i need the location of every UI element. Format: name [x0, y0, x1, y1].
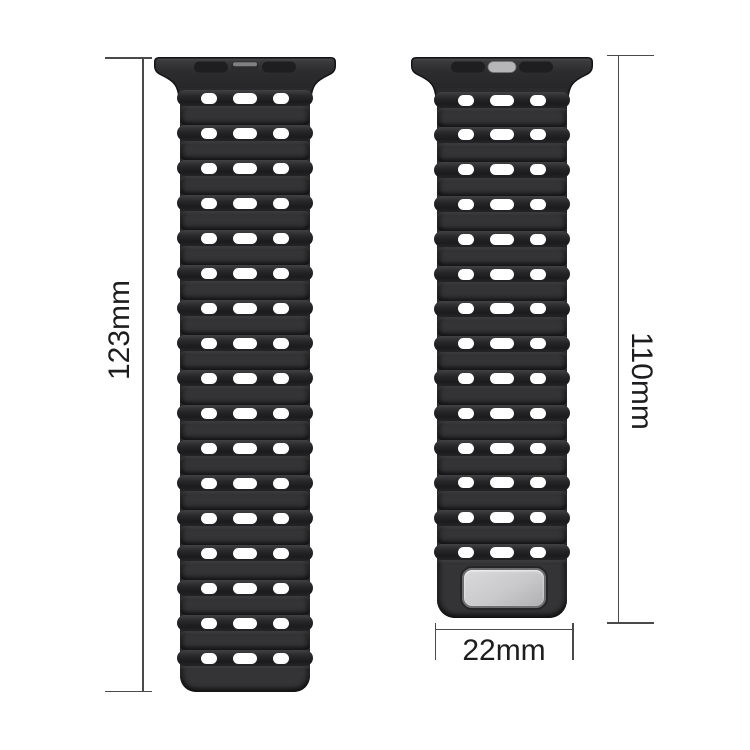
strap-ridge: [437, 212, 567, 231]
strap-hole: [490, 303, 514, 314]
strap-hole-row: [177, 615, 313, 631]
strap-ridge: [180, 211, 310, 230]
dim-tick-right-top: [607, 55, 654, 57]
strap-ridge: [437, 386, 567, 405]
strap-hole: [458, 373, 474, 384]
strap-hole: [458, 512, 474, 523]
strap-ridge: [437, 178, 567, 197]
strap-ridge: [180, 631, 310, 650]
strap-hole: [530, 164, 546, 175]
lug-slot-center-highlight: [233, 62, 257, 66]
dim-tick-width-right: [572, 623, 574, 660]
strap-hole: [490, 512, 514, 523]
strap-ridge: [437, 352, 567, 371]
strap-hole-row: [434, 440, 570, 456]
strap-hole-row: [434, 544, 570, 560]
strap-hole: [490, 408, 514, 419]
strap-hole: [490, 443, 514, 454]
strap-ridge: [180, 491, 310, 510]
strap-ridge: [180, 596, 310, 615]
strap-ridge: [180, 386, 310, 405]
strap-hole: [273, 93, 289, 104]
strap-ridge: [437, 247, 567, 266]
strap-hole: [458, 164, 474, 175]
strap-hole-row: [177, 125, 313, 141]
strap-ridge: [180, 176, 310, 195]
lug-top-highlight: [158, 59, 332, 61]
strap-ridge: [437, 143, 567, 162]
strap-hole-row: [177, 475, 313, 491]
strap-hole-row: [434, 336, 570, 352]
strap-short-body: [437, 88, 567, 618]
strap-hole: [233, 618, 257, 629]
strap-ridge: [180, 316, 310, 335]
strap-hole-row: [434, 405, 570, 421]
strap-hole: [273, 548, 289, 559]
strap-ridge: [437, 421, 567, 440]
strap-hole: [273, 128, 289, 139]
strap-ridge: [437, 456, 567, 475]
dim-line-right-length: [618, 55, 620, 623]
strap-hole-row: [434, 231, 570, 247]
strap-hole: [273, 478, 289, 489]
strap-hole: [233, 93, 257, 104]
strap-hole: [530, 443, 546, 454]
strap-hole: [530, 547, 546, 558]
strap-hole-row: [434, 301, 570, 317]
strap-hole: [201, 233, 217, 244]
strap-hole: [458, 547, 474, 558]
strap-hole: [201, 618, 217, 629]
strap-hole: [273, 583, 289, 594]
strap-hole: [530, 373, 546, 384]
strap-hole-row: [177, 650, 313, 666]
strap-hole: [530, 408, 546, 419]
strap-hole: [530, 477, 546, 488]
dim-label-strap-width: 22mm: [462, 635, 545, 667]
strap-hole: [273, 373, 289, 384]
product-dimension-diagram: 123mm 110mm 22mm: [0, 0, 750, 750]
strap-hole: [273, 618, 289, 629]
dim-tick-left-bottom: [105, 691, 152, 693]
strap-hole: [490, 199, 514, 210]
strap-hole: [458, 129, 474, 140]
strap-hole-row: [434, 510, 570, 526]
strap-hole: [458, 338, 474, 349]
strap-hole: [233, 443, 257, 454]
strap-hole: [458, 303, 474, 314]
strap-hole: [233, 338, 257, 349]
strap-hole: [201, 408, 217, 419]
dim-line-strap-width: [435, 629, 573, 631]
dim-label-right-length: 110mm: [625, 332, 657, 430]
strap-hole-row: [434, 162, 570, 178]
strap-hole-row: [177, 195, 313, 211]
strap-hole: [490, 373, 514, 384]
strap-hole-row: [434, 475, 570, 491]
strap-hole: [233, 303, 257, 314]
strap-hole: [490, 164, 514, 175]
strap-ridge: [180, 281, 310, 300]
strap-hole: [458, 477, 474, 488]
strap-hole: [273, 163, 289, 174]
strap-hole: [201, 338, 217, 349]
lug-top-highlight: [415, 59, 589, 61]
strap-hole: [458, 199, 474, 210]
strap-hole: [233, 583, 257, 594]
strap-hole-row: [434, 127, 570, 143]
strap-ridge: [180, 526, 310, 545]
strap-hole-row: [177, 440, 313, 456]
strap-hole-row: [434, 92, 570, 108]
strap-hole: [273, 303, 289, 314]
strap-hole: [458, 408, 474, 419]
strap-hole-row: [177, 510, 313, 526]
strap-hole: [233, 513, 257, 524]
strap-ridge: [437, 491, 567, 510]
strap-hole: [273, 338, 289, 349]
strap-hole-row: [177, 545, 313, 561]
strap-end-cap: [180, 666, 310, 692]
strap-hole-row: [177, 230, 313, 246]
strap-hole-row: [177, 160, 313, 176]
strap-hole: [201, 583, 217, 594]
strap-hole: [490, 547, 514, 558]
strap-hole: [233, 198, 257, 209]
strap-hole: [490, 338, 514, 349]
strap-hole: [530, 199, 546, 210]
strap-hole: [530, 95, 546, 106]
dim-tick-right-bottom: [607, 622, 654, 624]
strap-hole: [201, 93, 217, 104]
strap-long-body: [180, 88, 310, 692]
strap-hole: [273, 233, 289, 244]
strap-hole-row: [177, 300, 313, 316]
strap-hole: [273, 653, 289, 664]
strap-hole-row: [177, 90, 313, 106]
strap-hole: [273, 513, 289, 524]
lug-slot-center-button: [488, 62, 516, 73]
strap-hole-row: [177, 335, 313, 351]
lug-slot-right: [262, 62, 296, 73]
strap-hole: [490, 477, 514, 488]
strap-ridge: [180, 246, 310, 265]
strap-ridge: [180, 561, 310, 580]
strap-hole: [233, 478, 257, 489]
strap-ridge: [180, 456, 310, 475]
strap-hole: [273, 408, 289, 419]
strap-hole: [530, 234, 546, 245]
strap-ridge: [180, 106, 310, 125]
strap-hole: [233, 408, 257, 419]
strap-hole: [273, 443, 289, 454]
strap-hole-row: [434, 266, 570, 282]
lug-slot-left: [194, 62, 228, 73]
strap-hole: [201, 268, 217, 279]
strap-hole: [273, 198, 289, 209]
strap-hole: [233, 163, 257, 174]
strap-hole: [201, 443, 217, 454]
strap-hole: [490, 95, 514, 106]
lug-slot-left: [451, 62, 485, 73]
strap-hole: [233, 653, 257, 664]
strap-hole: [458, 269, 474, 280]
strap-hole: [233, 268, 257, 279]
strap-hole: [201, 303, 217, 314]
strap-hole: [458, 443, 474, 454]
strap-hole: [530, 129, 546, 140]
strap-hole: [458, 234, 474, 245]
strap-hole: [201, 373, 217, 384]
strap-hole: [233, 233, 257, 244]
strap-hole: [530, 512, 546, 523]
strap-hole: [201, 128, 217, 139]
strap-hole: [233, 373, 257, 384]
strap-end-cap: [437, 560, 567, 618]
strap-ridge: [437, 282, 567, 301]
strap-hole: [530, 303, 546, 314]
dim-tick-left-top: [105, 57, 152, 59]
strap-ridge: [437, 526, 567, 545]
strap-hole: [458, 95, 474, 106]
strap-hole-row: [434, 370, 570, 386]
lug-slot-right: [519, 62, 553, 73]
strap-hole: [201, 513, 217, 524]
strap-hole: [490, 269, 514, 280]
strap-hole: [490, 234, 514, 245]
strap-hole-row: [177, 580, 313, 596]
strap-hole: [273, 268, 289, 279]
strap-hole-row: [177, 265, 313, 281]
strap-hole: [201, 163, 217, 174]
strap-hole-row: [177, 370, 313, 386]
strap-hole-row: [177, 405, 313, 421]
dim-tick-width-left: [435, 623, 437, 660]
strap-hole: [233, 548, 257, 559]
strap-ridge: [180, 421, 310, 440]
strap-hole: [201, 653, 217, 664]
strap-ridge: [437, 108, 567, 127]
dim-line-left-length: [142, 58, 144, 692]
magnetic-buckle-plate: [462, 568, 546, 608]
strap-hole-row: [434, 196, 570, 212]
strap-hole: [530, 338, 546, 349]
strap-hole: [530, 269, 546, 280]
strap-hole: [490, 129, 514, 140]
strap-ridge: [180, 141, 310, 160]
dim-label-left-length: 123mm: [104, 280, 136, 380]
strap-ridge: [180, 351, 310, 370]
strap-hole: [201, 478, 217, 489]
strap-ridge: [437, 317, 567, 336]
strap-hole: [233, 128, 257, 139]
strap-hole: [201, 198, 217, 209]
strap-hole: [201, 548, 217, 559]
